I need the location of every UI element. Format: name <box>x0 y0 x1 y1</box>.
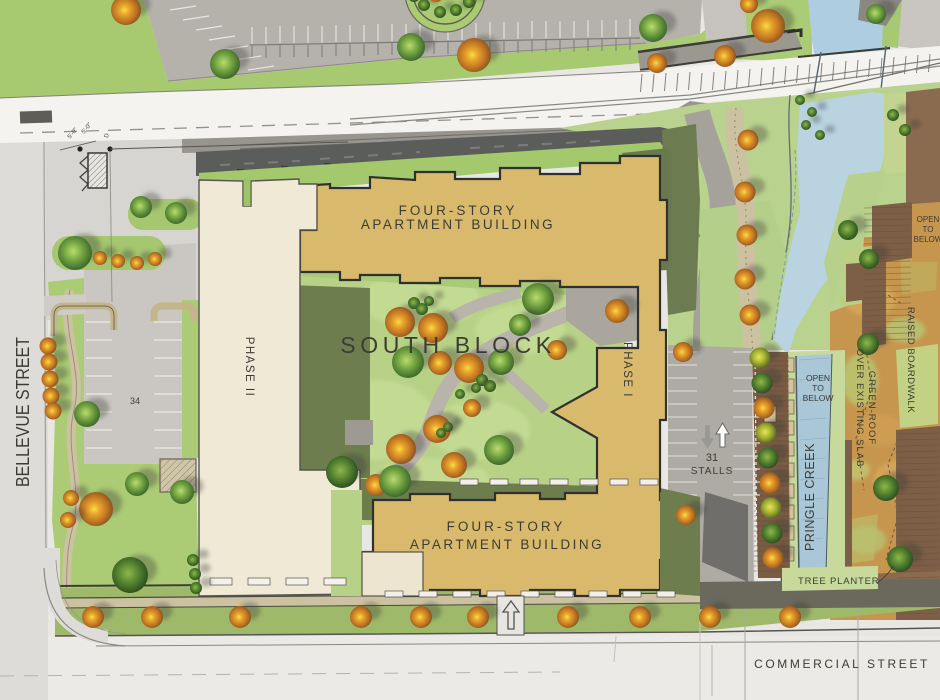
svg-text:PHASE II: PHASE II <box>243 337 255 398</box>
svg-text:BELOW: BELOW <box>914 235 940 244</box>
svg-text:APARTMENT BUILDING: APARTMENT BUILDING <box>410 537 604 552</box>
svg-text:SOUTH BLOCK: SOUTH BLOCK <box>340 332 555 358</box>
svg-text:OPEN: OPEN <box>806 373 830 383</box>
svg-text:BELOW: BELOW <box>803 393 834 403</box>
svg-text:31: 31 <box>706 452 718 464</box>
svg-text:APARTMENT BUILDING: APARTMENT BUILDING <box>361 217 555 232</box>
svg-text:PHASE I: PHASE I <box>621 342 633 398</box>
svg-text:OPEN: OPEN <box>917 215 940 224</box>
svg-text:OVER EXISTING SLAB: OVER EXISTING SLAB <box>854 349 865 468</box>
svg-text:BELLEVUE STREET: BELLEVUE STREET <box>13 337 33 487</box>
svg-text:COMMERCIAL STREET: COMMERCIAL STREET <box>754 657 930 671</box>
svg-text:34: 34 <box>130 396 140 406</box>
svg-text:TO: TO <box>812 383 824 393</box>
svg-text:PRINGLE CREEK: PRINGLE CREEK <box>803 443 817 551</box>
svg-text:TO: TO <box>923 225 934 234</box>
svg-text:GREEN-ROOF: GREEN-ROOF <box>866 371 877 445</box>
svg-text:STALLS: STALLS <box>691 466 734 477</box>
svg-text:TREE PLANTER: TREE PLANTER <box>798 576 879 587</box>
svg-text:FOUR-STORY: FOUR-STORY <box>447 519 566 534</box>
svg-text:FOUR-STORY: FOUR-STORY <box>399 203 518 218</box>
svg-text:RAISED BOARDWALK: RAISED BOARDWALK <box>905 307 916 414</box>
